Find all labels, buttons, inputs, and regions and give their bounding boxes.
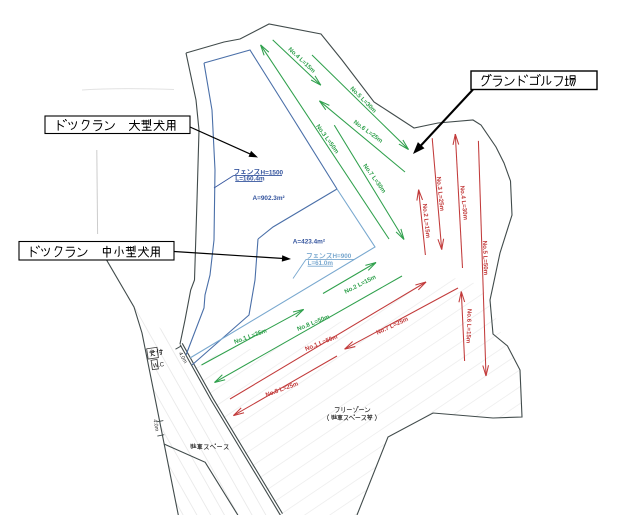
svg-text:No.6 L=15m: No.6 L=15m [464, 309, 472, 344]
svg-text:No.5 L=50m: No.5 L=50m [481, 241, 489, 276]
svg-text:A=423.4m²: A=423.4m² [293, 239, 325, 246]
svg-text:A=902.3m²: A=902.3m² [253, 195, 285, 202]
